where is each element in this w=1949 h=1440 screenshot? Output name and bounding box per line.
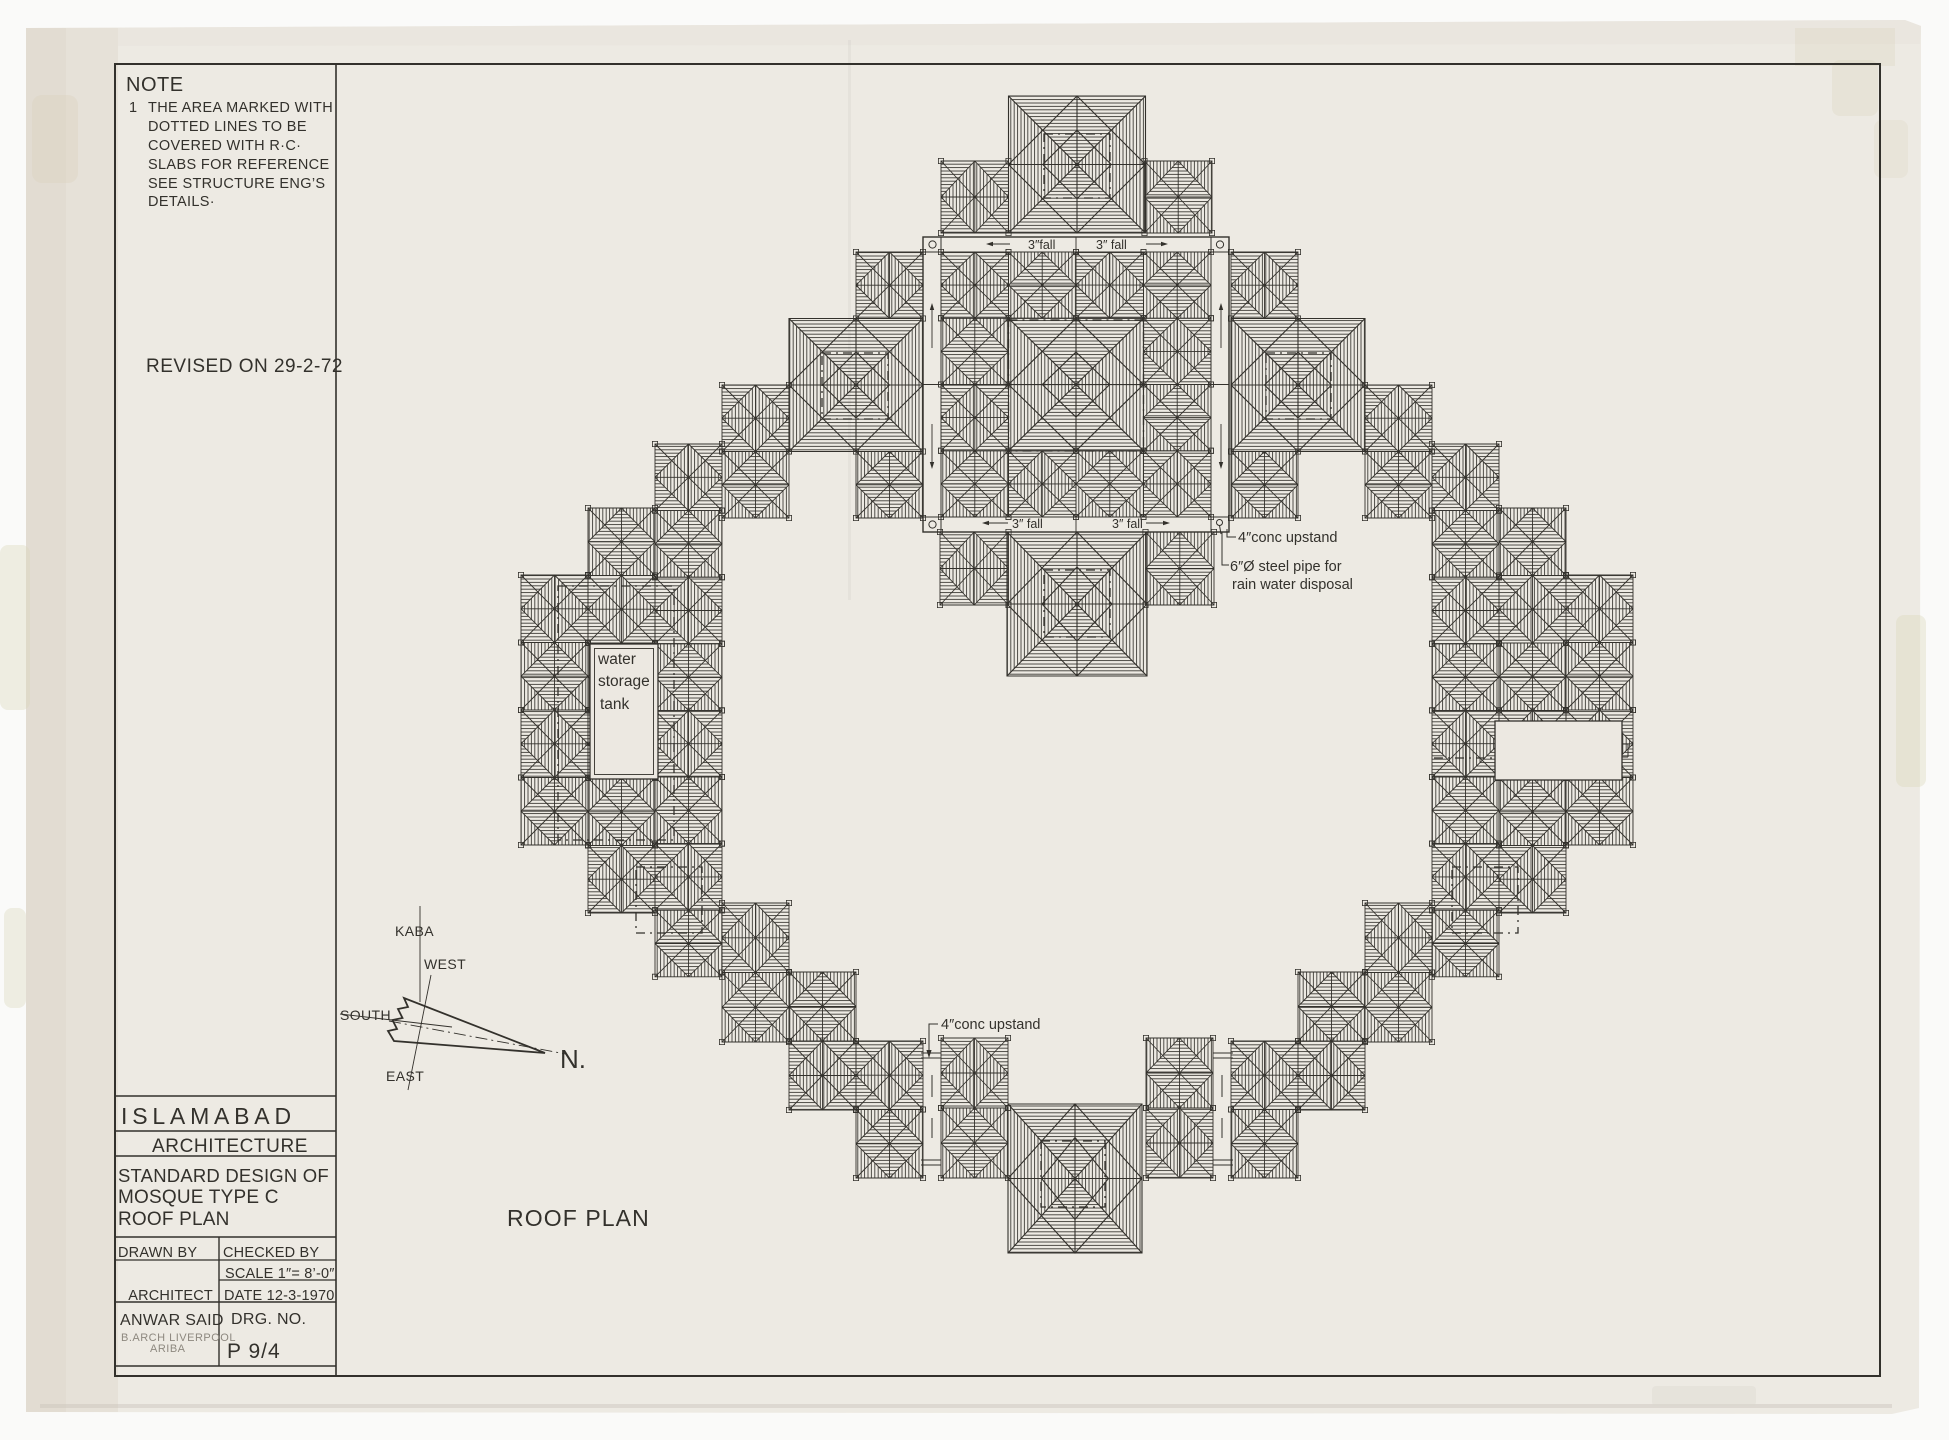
- svg-text:SEE STRUCTURE ENG’S: SEE STRUCTURE ENG’S: [148, 176, 325, 192]
- svg-text:6″Ø steel pipe for: 6″Ø steel pipe for: [1230, 559, 1342, 575]
- svg-text:1: 1: [129, 100, 137, 116]
- svg-text:DRG. NO.: DRG. NO.: [231, 1311, 306, 1328]
- svg-text:DETAILS·: DETAILS·: [148, 194, 215, 210]
- svg-text:ISLAMABAD: ISLAMABAD: [121, 1103, 296, 1129]
- svg-text:ROOF PLAN: ROOF PLAN: [118, 1209, 230, 1230]
- svg-text:3″fall: 3″fall: [1028, 238, 1055, 252]
- svg-text:3″ fall: 3″ fall: [1112, 517, 1143, 531]
- svg-text:REVISED ON 29-2-72: REVISED ON 29-2-72: [146, 356, 343, 377]
- svg-text:ARCHITECT: ARCHITECT: [128, 1288, 213, 1304]
- svg-text:storage: storage: [598, 673, 650, 690]
- svg-text:CHECKED BY: CHECKED BY: [223, 1245, 319, 1261]
- svg-text:tank: tank: [600, 696, 630, 713]
- svg-text:ARIBA: ARIBA: [150, 1343, 186, 1355]
- svg-text:ARCHITECTURE: ARCHITECTURE: [152, 1136, 308, 1157]
- svg-text:P 9/4: P 9/4: [227, 1340, 281, 1363]
- svg-text:4″conc upstand: 4″conc upstand: [941, 1017, 1040, 1033]
- svg-text:EAST: EAST: [386, 1068, 424, 1084]
- svg-text:4″conc upstand: 4″conc upstand: [1238, 530, 1337, 546]
- svg-text:ROOF PLAN: ROOF PLAN: [507, 1205, 650, 1231]
- svg-text:rain water disposal: rain water disposal: [1232, 577, 1353, 593]
- svg-text:THE AREA MARKED WITH: THE AREA MARKED WITH: [148, 100, 333, 116]
- svg-text:NOTE: NOTE: [126, 74, 184, 96]
- svg-text:WEST: WEST: [424, 956, 466, 972]
- svg-text:DATE 12-3-1970: DATE 12-3-1970: [224, 1288, 335, 1304]
- svg-text:3″ fall: 3″ fall: [1012, 517, 1043, 531]
- svg-text:KABA: KABA: [395, 923, 434, 939]
- svg-text:MOSQUE TYPE C: MOSQUE TYPE C: [118, 1187, 279, 1208]
- svg-text:DOTTED LINES TO BE: DOTTED LINES TO BE: [148, 119, 307, 135]
- svg-text:ANWAR SAID: ANWAR SAID: [120, 1312, 224, 1329]
- svg-text:SLABS FOR REFERENCE: SLABS FOR REFERENCE: [148, 157, 330, 173]
- svg-text:COVERED WITH R·C·: COVERED WITH R·C·: [148, 138, 301, 154]
- svg-text:DRAWN BY: DRAWN BY: [118, 1245, 197, 1261]
- svg-text:N.: N.: [560, 1044, 586, 1074]
- svg-text:STANDARD DESIGN OF: STANDARD DESIGN OF: [118, 1165, 329, 1186]
- svg-text:SCALE 1″= 8’-0″: SCALE 1″= 8’-0″: [225, 1266, 335, 1282]
- svg-text:3″ fall: 3″ fall: [1096, 238, 1127, 252]
- svg-text:water: water: [597, 651, 636, 668]
